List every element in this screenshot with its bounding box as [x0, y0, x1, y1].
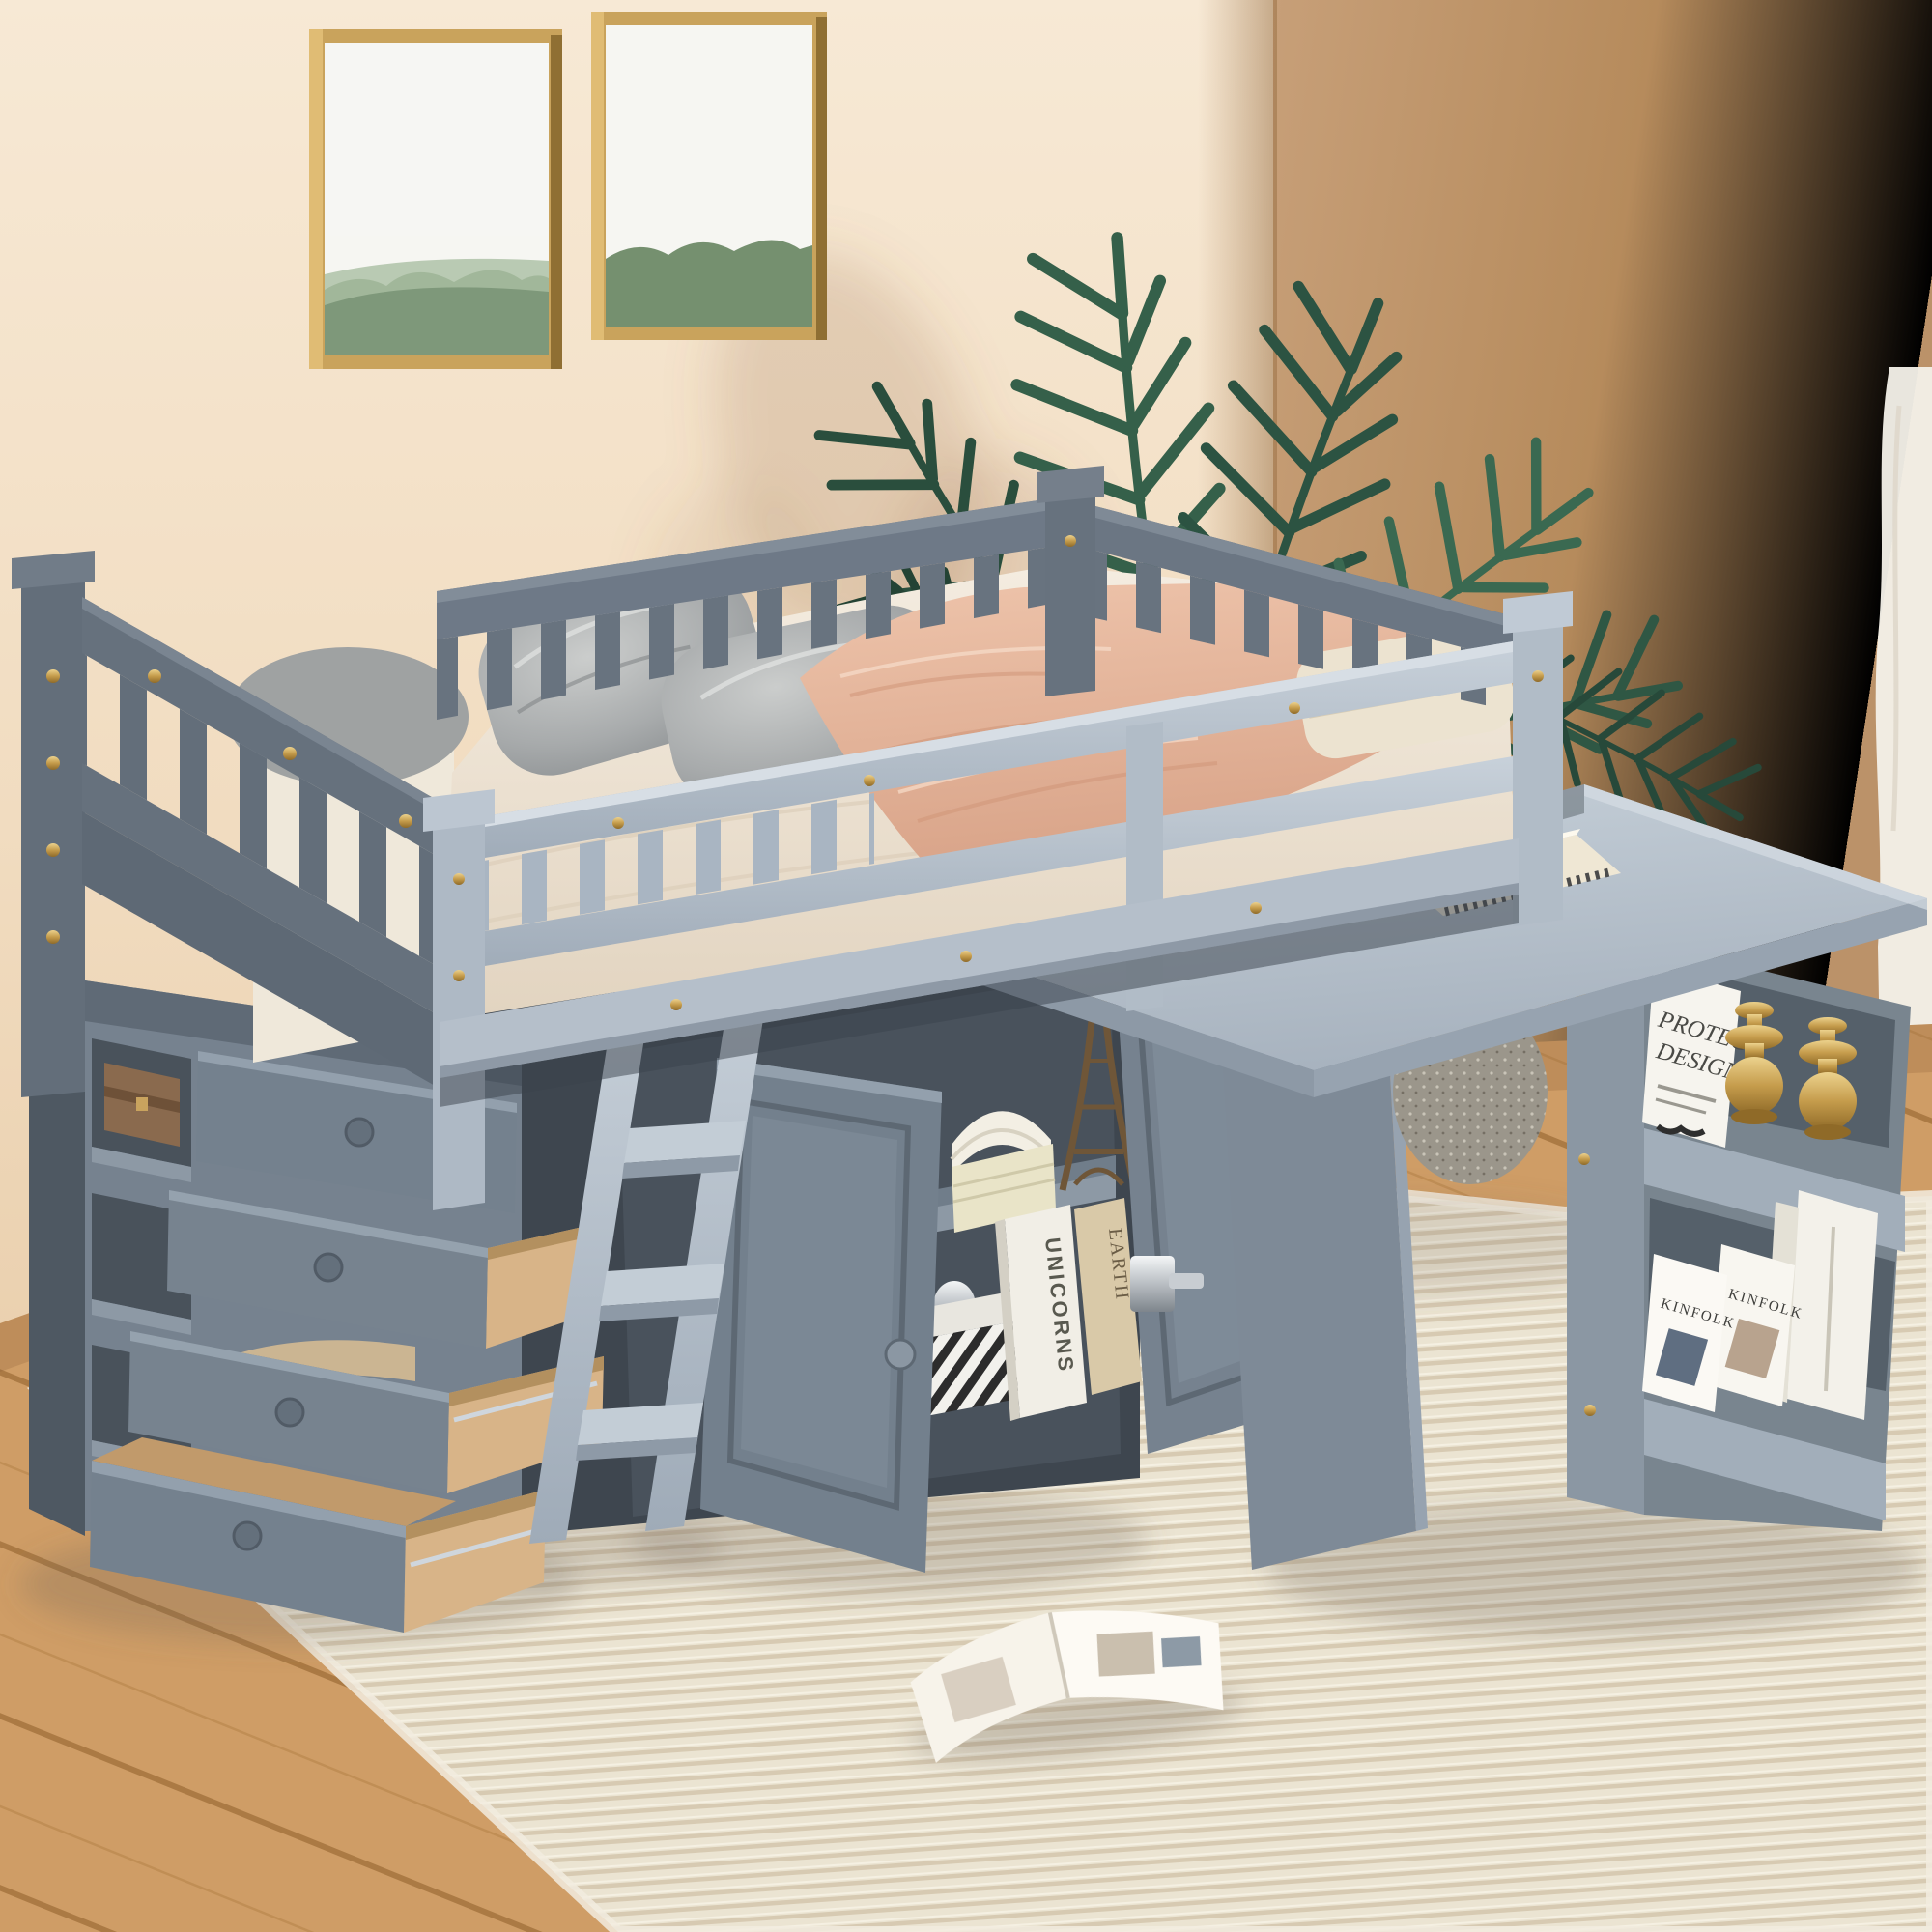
- drawer-knob: [276, 1399, 303, 1426]
- drawer-knob: [315, 1254, 342, 1281]
- drawer-knob: [346, 1119, 373, 1146]
- book-unicorns: UNICORNS: [995, 1205, 1087, 1421]
- wall-art-frame-2: [591, 12, 827, 340]
- drawer-knob: [234, 1522, 261, 1549]
- door-knob: [886, 1340, 915, 1369]
- art-forest-2: [606, 240, 812, 327]
- scene-canvas: UNICORNS EARTH: [0, 0, 1932, 1932]
- bedroom-scene: UNICORNS EARTH: [0, 0, 1932, 1932]
- wall-art-frame-1: [309, 29, 562, 369]
- bed-post-front-left: [423, 789, 495, 1210]
- bed-post-back-right: [1037, 466, 1104, 696]
- curtain: [1876, 367, 1932, 1058]
